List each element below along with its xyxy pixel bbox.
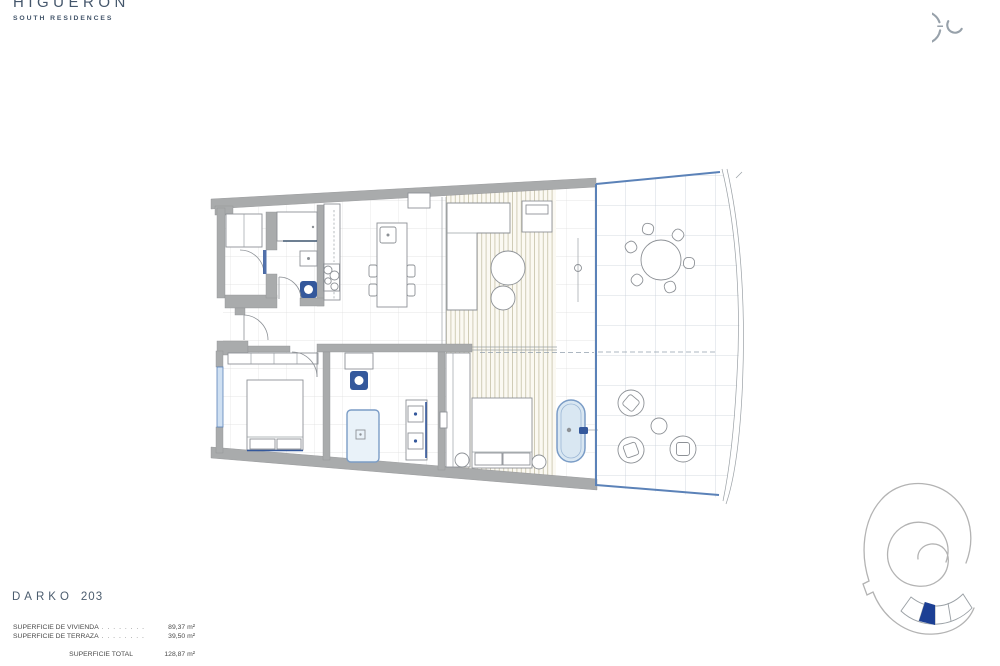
dot-leader: . . . . . . . . . . — [102, 633, 144, 640]
building-keyplan-icon — [855, 470, 995, 655]
total-value: 128,87 m² — [147, 651, 195, 658]
keyplan-unit-band — [901, 594, 972, 624]
kitchen-island-symbol — [377, 223, 407, 307]
side-table-symbol — [491, 286, 515, 310]
dot-leader: . . . . . . . . . . — [102, 624, 144, 631]
surface-total-row: SUPERFICIE TOTAL 128,87 m² — [13, 651, 195, 660]
window-symbol — [217, 367, 223, 427]
nightstand-symbol — [532, 455, 546, 469]
surface-row-terraza: SUPERFICIE DE TERRAZA . . . . . . . . . … — [13, 633, 195, 642]
double-vanity-symbol — [406, 400, 427, 460]
surface-row-vivienda: SUPERFICIE DE VIVIENDA . . . . . . . . .… — [13, 624, 195, 633]
surface-table: SUPERFICIE DE VIVIENDA . . . . . . . . .… — [13, 624, 195, 660]
floor-plan — [200, 155, 760, 520]
surface-label: SUPERFICIE DE VIVIENDA — [13, 624, 99, 631]
surface-value: 39,50 m² — [147, 633, 195, 640]
unit-info: DARKO 203 — [12, 591, 103, 603]
surface-value: 89,37 m² — [147, 624, 195, 631]
brochure-page: HIGUERON SOUTH RESIDENCES — [0, 0, 1000, 666]
shower-symbol — [277, 212, 317, 241]
brand-subtitle: SOUTH RESIDENCES — [13, 15, 130, 22]
lounge-table-symbol — [651, 418, 667, 434]
total-label: SUPERFICIE TOTAL — [69, 651, 133, 658]
tv-cabinet-symbol — [522, 201, 552, 232]
coffee-table-symbol — [491, 251, 525, 285]
terrace-floor — [594, 168, 744, 503]
wardrobe-symbol — [228, 353, 318, 364]
brand-name: HIGUERON — [13, 0, 130, 11]
cistern-symbol — [345, 353, 373, 369]
brand-roundel-icon — [932, 2, 978, 48]
master-wardrobe-symbol — [446, 353, 470, 467]
double-bed-symbol — [247, 380, 303, 451]
unit-model: DARKO — [12, 591, 73, 603]
unit-number: 203 — [81, 591, 103, 603]
shower-2-symbol — [347, 410, 379, 462]
surface-label: SUPERFICIE DE TERRAZA — [13, 633, 99, 640]
brand-logo: HIGUERON SOUTH RESIDENCES — [13, 0, 130, 22]
page-title: DARKO 203 — [12, 591, 103, 603]
nightstand-symbol — [455, 453, 469, 467]
